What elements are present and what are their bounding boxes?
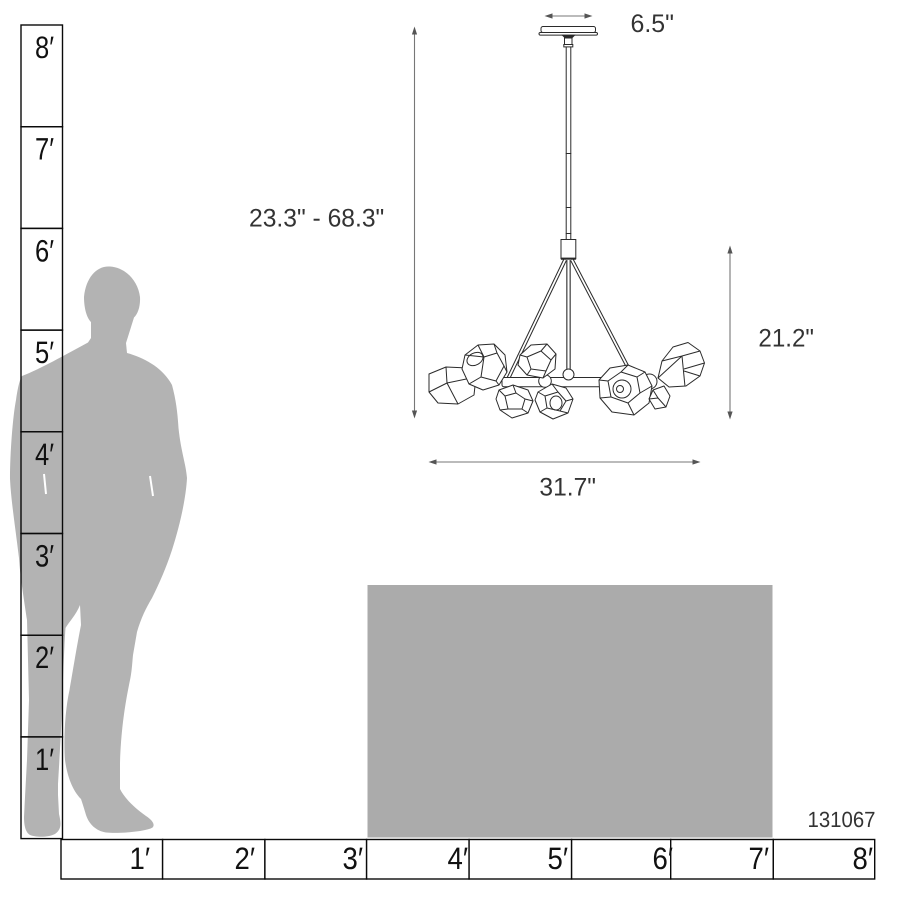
svg-text:8′: 8′	[35, 30, 54, 65]
svg-text:3′: 3′	[343, 841, 364, 876]
svg-text:8′: 8′	[853, 841, 874, 876]
svg-text:2′: 2′	[235, 841, 256, 876]
svg-text:2′: 2′	[35, 640, 54, 675]
svg-text:5′: 5′	[35, 335, 54, 370]
svg-text:5′: 5′	[548, 841, 569, 876]
svg-text:7′: 7′	[749, 841, 770, 876]
svg-text:3′: 3′	[35, 539, 54, 574]
svg-text:7′: 7′	[35, 132, 54, 167]
svg-text:6.5": 6.5"	[631, 10, 675, 38]
svg-text:4′: 4′	[35, 437, 54, 472]
svg-text:31.7": 31.7"	[539, 473, 596, 501]
svg-text:21.2": 21.2"	[758, 324, 814, 352]
svg-text:23.3" - 68.3": 23.3" - 68.3"	[249, 205, 384, 233]
svg-text:1′: 1′	[130, 841, 151, 876]
svg-text:6′: 6′	[653, 841, 674, 876]
svg-text:6′: 6′	[35, 233, 54, 268]
svg-text:1′: 1′	[35, 742, 54, 777]
svg-text:131067: 131067	[808, 807, 876, 832]
svg-text:4′: 4′	[448, 841, 469, 876]
